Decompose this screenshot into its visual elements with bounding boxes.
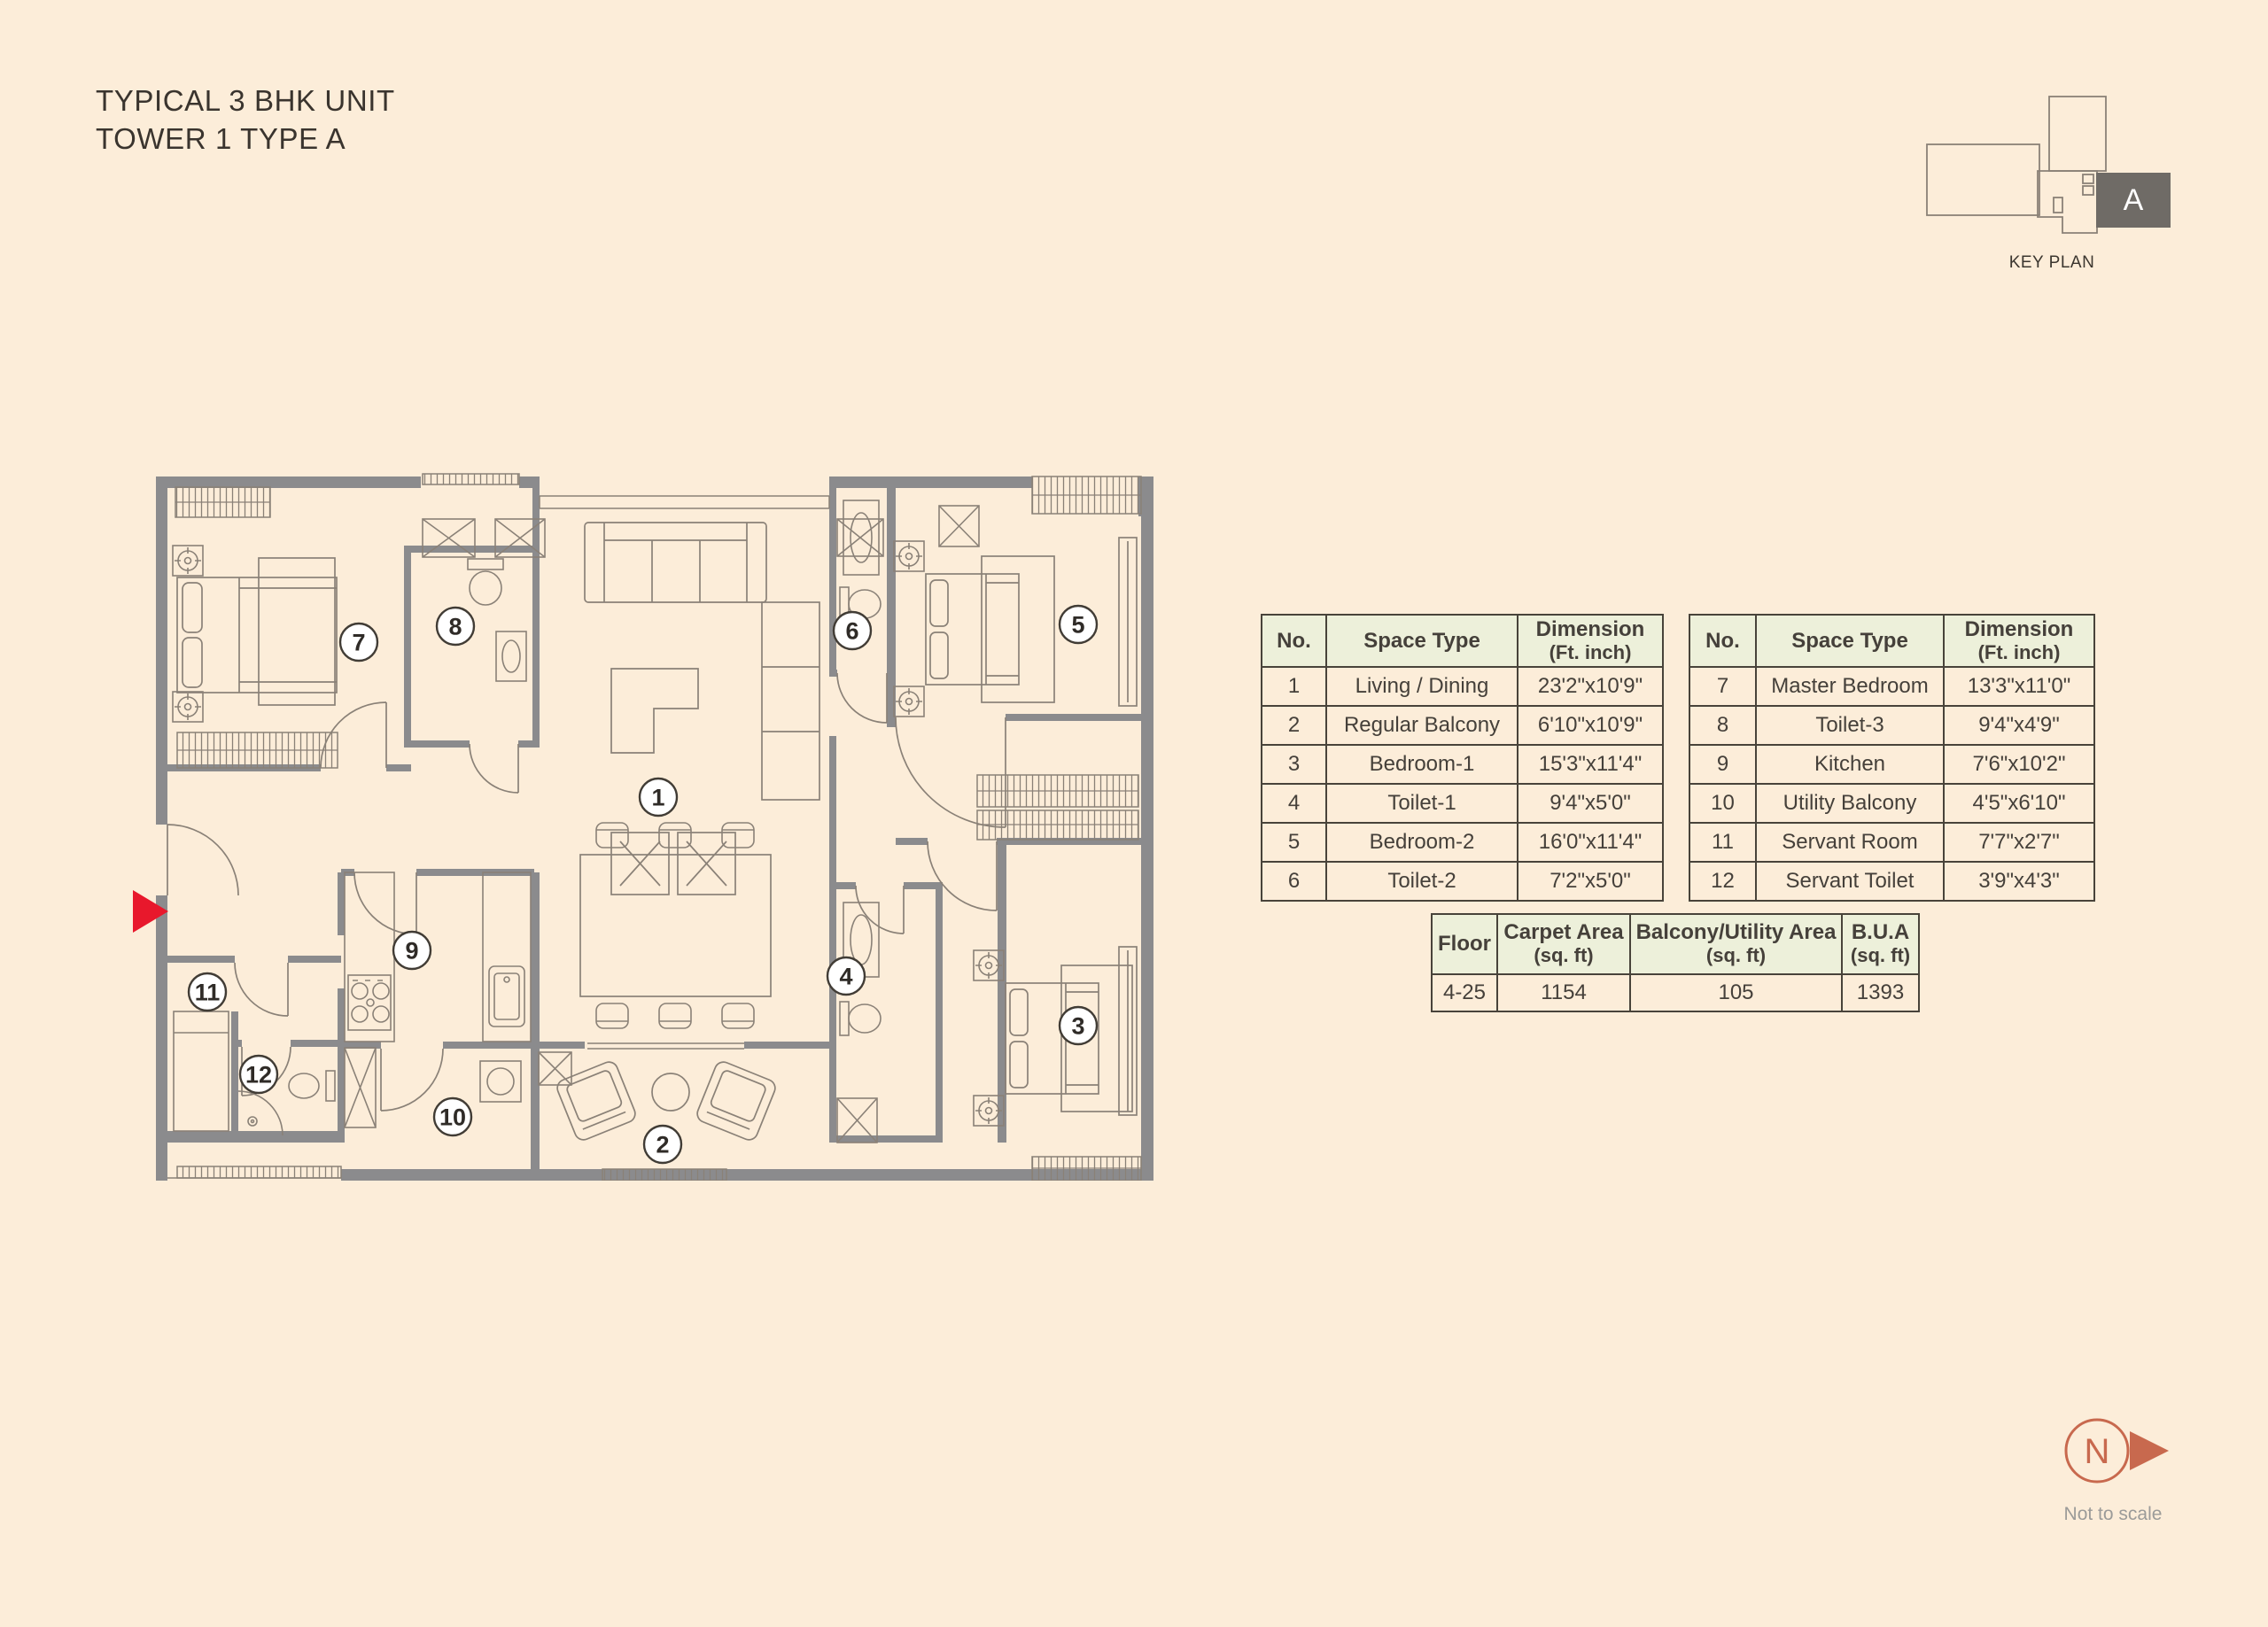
table-row: 4Toilet-19'4"x5'0": [1262, 784, 1663, 823]
table-row: 6Toilet-27'2"x5'0": [1262, 862, 1663, 901]
col-carpet-area: Carpet Area (sq. ft): [1497, 914, 1630, 974]
room-number-6: 6: [845, 618, 858, 645]
table-cell: 16'0"x11'4": [1518, 823, 1663, 862]
table-cell: 4-25: [1432, 974, 1497, 1011]
room-number-8: 8: [448, 614, 462, 640]
table-cell: 15'3"x11'4": [1518, 745, 1663, 784]
key-plan-diagram: A: [1914, 89, 2197, 248]
kitchen-fixtures: [345, 872, 531, 1042]
room-number-5: 5: [1071, 612, 1084, 639]
table-cell: 10: [1689, 784, 1756, 823]
title-line-2: TOWER 1 TYPE A: [96, 120, 395, 158]
title-line-1: TYPICAL 3 BHK UNIT: [96, 81, 395, 120]
north-compass: N: [2038, 1404, 2188, 1492]
key-plan-core: [2038, 171, 2097, 233]
room-labels: 123456789101112: [189, 606, 1097, 1163]
key-plan-wing-left: [1927, 144, 2039, 215]
col-no: No.: [1689, 615, 1756, 667]
table-header-row: Floor Carpet Area (sq. ft) Balcony/Utili…: [1432, 914, 1919, 974]
col-dimension: Dimension (Ft. inch): [1944, 615, 2094, 667]
servant-wc: [289, 1073, 319, 1098]
room-number-4: 4: [839, 964, 852, 990]
table-row: 2Regular Balcony6'10"x10'9": [1262, 706, 1663, 745]
table-cell: 7'2"x5'0": [1518, 862, 1663, 901]
table-cell: Toilet-1: [1326, 784, 1518, 823]
table-row: 9Kitchen7'6"x10'2": [1689, 745, 2094, 784]
shower-arc: [238, 1091, 283, 1135]
table-header-row: No. Space Type Dimension (Ft. inch): [1262, 615, 1663, 667]
table-cell: 1: [1262, 667, 1326, 706]
table-cell: 7: [1689, 667, 1756, 706]
table-cell: 1154: [1497, 974, 1630, 1011]
toilet-2-door: [837, 673, 887, 723]
table-cell: Living / Dining: [1326, 667, 1518, 706]
table-cell: 1393: [1842, 974, 1919, 1011]
table-row: 1Living / Dining23'2"x10'9": [1262, 667, 1663, 706]
sofa-chaise: [762, 602, 819, 800]
north-letter: N: [2085, 1432, 2110, 1471]
servant-bed: [174, 1011, 229, 1131]
toilet-3-fixtures: [468, 559, 526, 681]
space-table-right: No. Space Type Dimension (Ft. inch) 7Mas…: [1689, 614, 2095, 902]
sofa: [585, 523, 766, 602]
master-bed: [177, 577, 337, 693]
table-cell: 9'4"x5'0": [1518, 784, 1663, 823]
col-space-type: Space Type: [1756, 615, 1944, 667]
key-plan-wing-top: [2049, 97, 2106, 171]
col-space-type: Space Type: [1326, 615, 1518, 667]
table-row: 10Utility Balcony4'5"x6'10": [1689, 784, 2094, 823]
room-number-7: 7: [352, 630, 365, 656]
floor-plan: 123456789101112: [124, 470, 1171, 1181]
not-to-scale-note: Not to scale: [2038, 1504, 2188, 1525]
table-cell: 5: [1262, 823, 1326, 862]
col-bua: B.U.A (sq. ft): [1842, 914, 1919, 974]
col-floor: Floor: [1432, 914, 1497, 974]
table-cell: 9'4"x4'9": [1944, 706, 2094, 745]
utility-fixtures: [480, 1061, 521, 1102]
table-row: 4-2511541051393: [1432, 974, 1919, 1011]
table-row: 5Bedroom-216'0"x11'4": [1262, 823, 1663, 862]
table-cell: 3'9"x4'3": [1944, 862, 2094, 901]
bedroom-2-bed: [926, 574, 1019, 685]
table-cell: Servant Room: [1756, 823, 1944, 862]
table-cell: 23'2"x10'9": [1518, 667, 1663, 706]
table-row: 8Toilet-39'4"x4'9": [1689, 706, 2094, 745]
living-dining-furniture: [580, 523, 819, 1028]
table-cell: 7'7"x2'7": [1944, 823, 2094, 862]
table-cell: Utility Balcony: [1756, 784, 1944, 823]
balcony-table: [652, 1073, 689, 1111]
table-row: 7Master Bedroom13'3"x11'0": [1689, 667, 2094, 706]
table-row: 3Bedroom-115'3"x11'4": [1262, 745, 1663, 784]
room-number-1: 1: [651, 785, 664, 811]
space-table-left: No. Space Type Dimension (Ft. inch) 1Liv…: [1261, 614, 1664, 902]
table-cell: 2: [1262, 706, 1326, 745]
key-plan-lift-1: [2083, 174, 2093, 183]
bedroom-2-furniture: [894, 538, 1137, 717]
col-balcony-area: Balcony/Utility Area (sq. ft): [1630, 914, 1842, 974]
table-cell: 6: [1262, 862, 1326, 901]
table-header-row: No. Space Type Dimension (Ft. inch): [1689, 615, 2094, 667]
table-cell: 105: [1630, 974, 1842, 1011]
table-cell: 9: [1689, 745, 1756, 784]
table-cell: Toilet-2: [1326, 862, 1518, 901]
toilet-1-door: [856, 886, 904, 934]
utility-balcony-door: [381, 1049, 443, 1111]
table-cell: 4'5"x6'10": [1944, 784, 2094, 823]
table-cell: Bedroom-1: [1326, 745, 1518, 784]
table-cell: Servant Toilet: [1756, 862, 1944, 901]
table-cell: 13'3"x11'0": [1944, 667, 2094, 706]
table-cell: Kitchen: [1756, 745, 1944, 784]
key-plan-label: KEY PLAN: [1914, 253, 2190, 273]
table-cell: Regular Balcony: [1326, 706, 1518, 745]
kitchen-door: [354, 872, 416, 934]
table-cell: 7'6"x10'2": [1944, 745, 2094, 784]
table-cell: Master Bedroom: [1756, 667, 1944, 706]
page-title: TYPICAL 3 BHK UNIT TOWER 1 TYPE A: [96, 81, 395, 158]
room-number-9: 9: [405, 938, 418, 965]
room-number-2: 2: [656, 1132, 669, 1158]
room-number-10: 10: [439, 1104, 466, 1131]
key-plan-lift-2: [2083, 186, 2093, 195]
table-row: 12Servant Toilet3'9"x4'3": [1689, 862, 2094, 901]
north-arrow-icon: [2130, 1431, 2169, 1470]
master-bedroom-furniture: [173, 546, 337, 722]
tv-console: [611, 669, 698, 753]
table-cell: 4: [1262, 784, 1326, 823]
table-row: 11Servant Room7'7"x2'7": [1689, 823, 2094, 862]
toilet-3-door: [470, 744, 518, 793]
table-cell: Bedroom-2: [1326, 823, 1518, 862]
table-cell: 3: [1262, 745, 1326, 784]
table-cell: 11: [1689, 823, 1756, 862]
table-cell: 6'10"x10'9": [1518, 706, 1663, 745]
table-cell: Toilet-3: [1756, 706, 1944, 745]
room-number-11: 11: [195, 980, 221, 1006]
table-cell: 12: [1689, 862, 1756, 901]
room-number-12: 12: [245, 1062, 272, 1089]
entry-door: [167, 825, 238, 895]
col-no: No.: [1262, 615, 1326, 667]
servant-room-door: [235, 963, 288, 1016]
room-number-3: 3: [1071, 1013, 1084, 1040]
dining-table: [580, 855, 771, 996]
table-cell: 8: [1689, 706, 1756, 745]
key-plan-stair: [2054, 198, 2062, 213]
key-plan-unit-letter: A: [2124, 183, 2144, 217]
area-table: Floor Carpet Area (sq. ft) Balcony/Utili…: [1431, 913, 1920, 1012]
col-dimension: Dimension (Ft. inch): [1518, 615, 1663, 667]
